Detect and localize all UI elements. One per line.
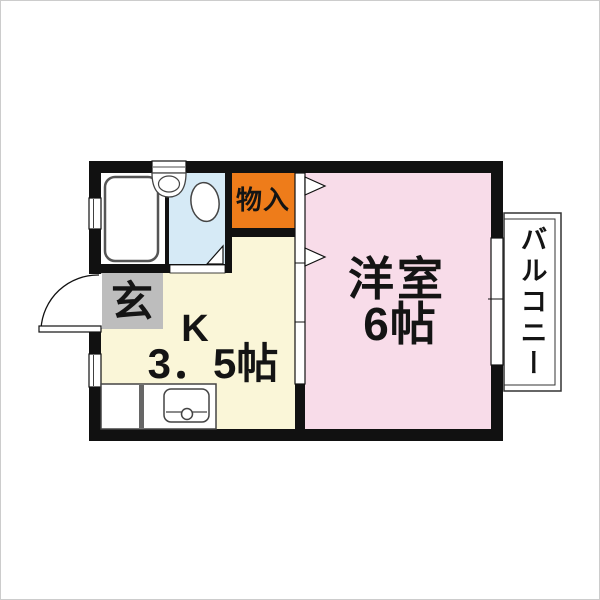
- closet-label: 物入: [230, 187, 296, 213]
- floorplan-canvas: 洋室 6帖 K 3．5帖 玄 物入 バルコニー: [0, 0, 600, 600]
- bathtub-icon: [105, 177, 158, 261]
- western-room-size: 6帖: [295, 301, 505, 347]
- entrance-door: [39, 274, 102, 332]
- wall-bottom: [89, 429, 503, 441]
- washbasin-bowl-icon: [159, 176, 180, 192]
- kitchen-size: 3．5帖: [113, 343, 313, 385]
- wall-kitchen-room-lower: [295, 384, 305, 429]
- kitchen-counter-divider: [139, 385, 144, 428]
- kitchen-counter: [101, 384, 216, 429]
- kitchen-sink-drain-icon: [182, 409, 193, 420]
- bath-door-threshold: [170, 265, 225, 273]
- balcony-label: バルコニー: [513, 215, 549, 389]
- wall-top: [89, 161, 503, 173]
- entrance-label: 玄: [101, 281, 163, 323]
- entrance-doorway-gap: [88, 274, 102, 328]
- entrance-door-leaf: [39, 326, 101, 332]
- window-left-upper: [89, 198, 101, 229]
- wall-closet-bottom: [232, 228, 295, 237]
- window-left-lower: [89, 354, 101, 387]
- western-room-label: 洋室: [295, 256, 499, 302]
